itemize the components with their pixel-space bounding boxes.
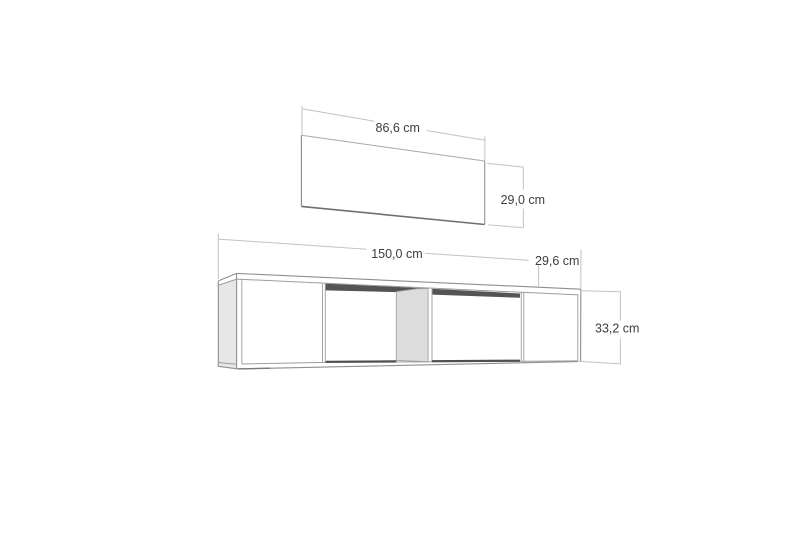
svg-text:29,0 cm: 29,0 cm bbox=[501, 193, 545, 207]
svg-text:33,2 cm: 33,2 cm bbox=[595, 322, 639, 336]
svg-text:86,6 cm: 86,6 cm bbox=[376, 121, 420, 135]
svg-text:150,0 cm: 150,0 cm bbox=[371, 247, 422, 261]
svg-text:29,6 cm: 29,6 cm bbox=[535, 254, 579, 268]
